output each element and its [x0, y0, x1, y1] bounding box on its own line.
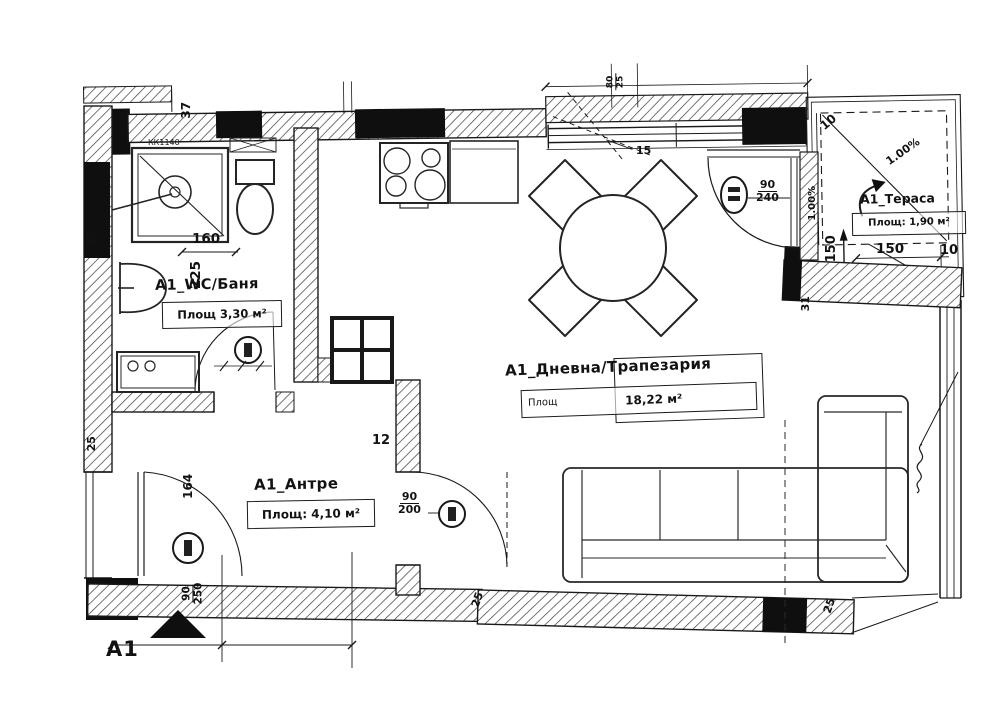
antre-door-height: 200: [398, 504, 421, 516]
dim-15: 15: [636, 145, 651, 157]
room-label-terrace-area: Площ: 1,90 м²: [852, 211, 966, 236]
apartment-marker: A1: [106, 638, 139, 660]
dim-top-window: 80 25: [606, 74, 626, 91]
dim-164: 164: [182, 474, 195, 499]
antre-door-width: 90: [400, 491, 419, 504]
dim-37: 37: [180, 102, 193, 119]
dim-antre-door: 90 200: [398, 491, 421, 515]
dim-terrace-150-v: 150: [825, 235, 839, 262]
entry-door-height: 250: [193, 583, 204, 605]
dim-31: 31: [800, 296, 812, 311]
room-label-terrace-title: А1_Тераса: [860, 191, 935, 205]
floor-plan-page: А1_WC/Баня Площ 3,30 м² А1_Антре Площ: 4…: [0, 0, 1000, 717]
dim-25-left-top: 25: [86, 230, 98, 245]
room-label-antre-title: А1_Антре: [254, 476, 339, 493]
room-label-wc-area: Площ 3,30 м²: [162, 300, 282, 329]
top-window-b: 25: [617, 76, 626, 89]
dim-225: 225: [189, 261, 203, 289]
dim-12: 12: [372, 434, 390, 448]
dim-balcony-door: 90 240: [756, 179, 779, 203]
living-area-caption: Площ: [528, 398, 558, 410]
balcony-door-width: 90: [758, 179, 777, 192]
dim-slope-vertical: 1.00%: [808, 186, 819, 221]
dim-terrace-10-right: 10: [940, 244, 958, 258]
dim-shelf-code: КК1140: [148, 139, 180, 147]
dim-entry-door: 90 250: [181, 583, 204, 605]
room-label-wc-title: А1_WC/Баня: [155, 277, 259, 294]
dim-160: 160: [192, 232, 220, 246]
balcony-door-height: 240: [756, 192, 779, 204]
living-area-value: 18,22 м²: [557, 390, 750, 409]
dim-terrace-150-h: 150: [876, 242, 904, 256]
room-label-antre-area: Площ: 4,10 м²: [247, 499, 375, 529]
dim-25-left-bottom: 25: [86, 436, 98, 451]
floor-plan-drawing: [0, 0, 1000, 717]
